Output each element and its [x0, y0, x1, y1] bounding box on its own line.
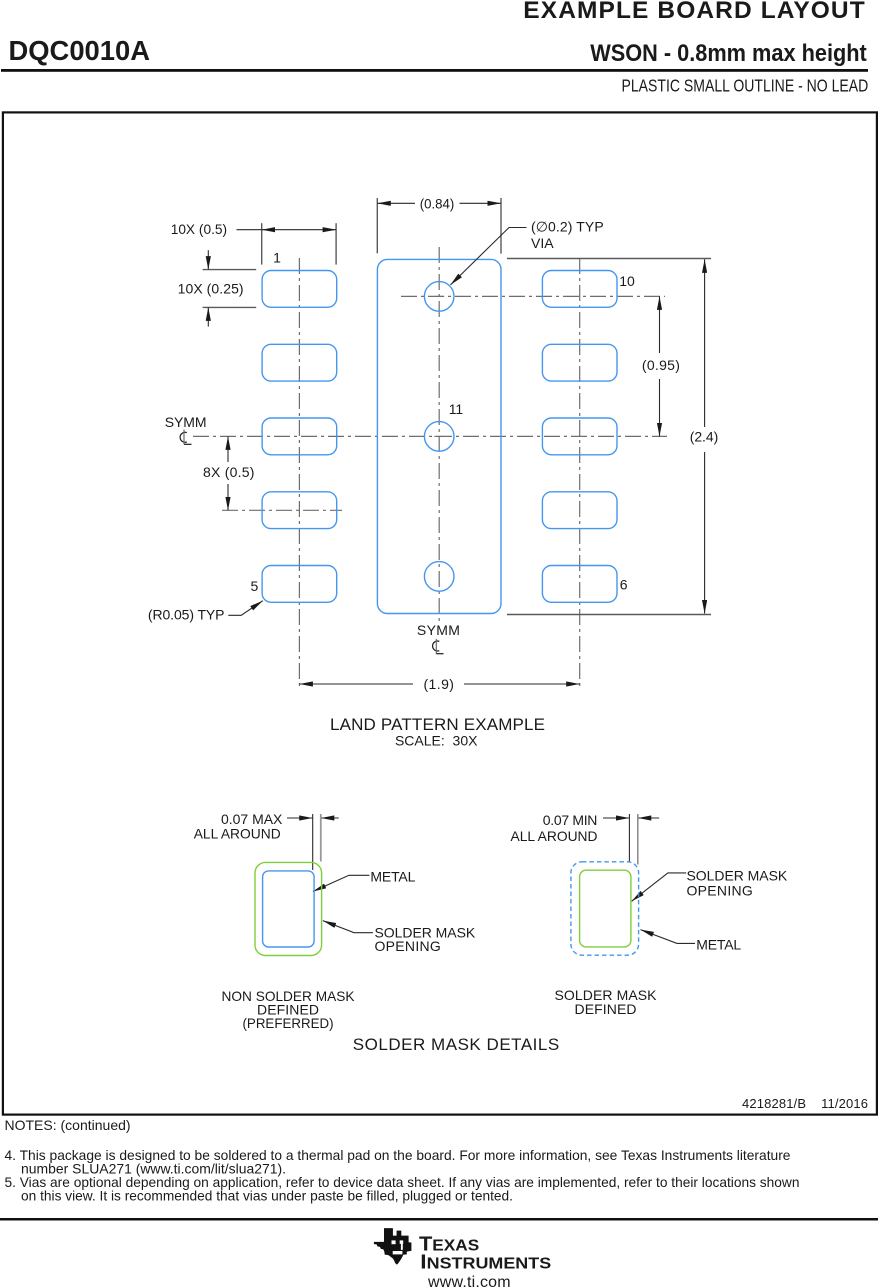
svg-text:10X (0.25): 10X (0.25) [178, 281, 244, 297]
svg-text:8X (0.5): 8X (0.5) [203, 464, 254, 480]
svg-text:OPENING: OPENING [687, 883, 753, 899]
svg-text:on this view. It is recommende: on this view. It is recommended that via… [21, 1188, 513, 1204]
svg-text:10X (0.5): 10X (0.5) [171, 221, 227, 237]
svg-text:10: 10 [619, 273, 635, 289]
svg-text:4218281/B 11/2016: 4218281/B 11/2016 [742, 1096, 868, 1111]
svg-text:PLASTIC SMALL OUTLINE - NO LEA: PLASTIC SMALL OUTLINE - NO LEAD [622, 76, 869, 96]
svg-text:DEFINED: DEFINED [575, 1001, 637, 1017]
svg-text:EXAMPLE BOARD LAYOUT: EXAMPLE BOARD LAYOUT [523, 0, 864, 24]
svg-text:ALL AROUND: ALL AROUND [194, 826, 281, 842]
svg-text:SCALE: 30X: SCALE: 30X [395, 732, 478, 748]
svg-text:ALL AROUND: ALL AROUND [511, 828, 598, 844]
svg-text:INSTRUMENTS: INSTRUMENTS [420, 1252, 551, 1274]
svg-text:(0.95): (0.95) [642, 357, 680, 373]
svg-text:(2.4): (2.4) [690, 429, 719, 445]
svg-text:6: 6 [620, 576, 628, 592]
svg-text:SYMM: SYMM [417, 622, 460, 638]
svg-text:www.ti.com: www.ti.com [427, 1274, 511, 1288]
svg-text:NOTES: (continued): NOTES: (continued) [5, 1117, 131, 1133]
svg-text:DQC0010A: DQC0010A [9, 35, 151, 66]
svg-text:TEXAS: TEXAS [419, 1233, 479, 1255]
svg-text:(R0.05) TYP: (R0.05) TYP [148, 607, 225, 623]
svg-text:(1.9): (1.9) [423, 676, 454, 692]
svg-text:METAL: METAL [696, 936, 741, 952]
svg-text:(0.84): (0.84) [420, 196, 455, 212]
svg-text:(PREFERRED): (PREFERRED) [243, 1015, 334, 1031]
svg-text:SOLDER MASK: SOLDER MASK [687, 867, 788, 883]
svg-text:5: 5 [251, 578, 259, 594]
svg-text:1: 1 [273, 250, 281, 266]
svg-text:0.07 MIN: 0.07 MIN [543, 812, 598, 828]
svg-text:METAL: METAL [370, 868, 415, 884]
svg-text:VIA: VIA [531, 235, 554, 251]
svg-text:11: 11 [449, 401, 464, 417]
svg-text:OPENING: OPENING [375, 938, 441, 954]
svg-text:SYMM: SYMM [165, 414, 207, 430]
svg-text:(∅0.2) TYP: (∅0.2) TYP [531, 219, 604, 235]
svg-text:SOLDER MASK DETAILS: SOLDER MASK DETAILS [353, 1035, 560, 1054]
svg-text:WSON - 0.8mm max height: WSON - 0.8mm max height [590, 40, 867, 67]
svg-text:LAND PATTERN EXAMPLE: LAND PATTERN EXAMPLE [330, 715, 545, 734]
